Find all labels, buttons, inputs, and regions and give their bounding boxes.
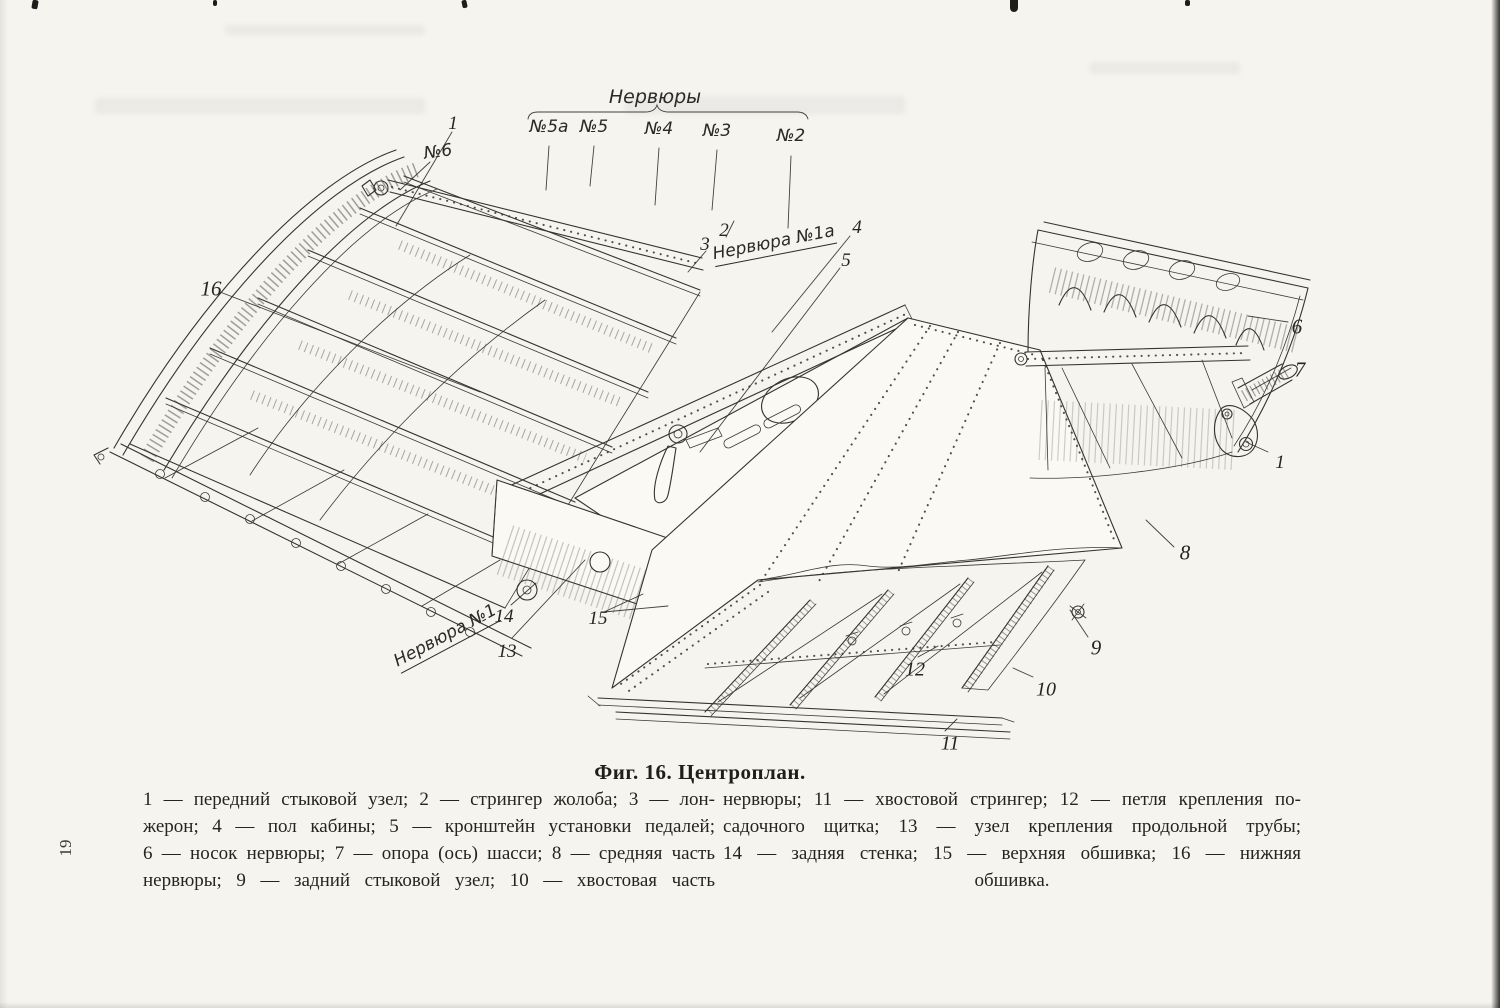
callout-9: 9 — [1091, 636, 1102, 661]
legend-line: 1 — передний стыковой узел; 2 — стрингер… — [143, 786, 715, 813]
callout-4: 4 — [852, 217, 862, 239]
rib-label-6: №6 — [422, 140, 453, 164]
rib-label-3: №3 — [703, 121, 732, 141]
callout-8: 8 — [1180, 541, 1191, 566]
callout-5: 5 — [841, 250, 851, 272]
legend-line: 6 — носок нервюры; 7 — опора (ось) шасси… — [143, 840, 715, 867]
legend-line: 14 — задняя стенка; 15 — верхняя обшивка… — [723, 840, 1301, 867]
legend-line: жерон; 4 — пол кабины; 5 — кронштейн уст… — [143, 813, 715, 840]
right-wing-panel-framework — [1015, 222, 1310, 478]
callout-12: 12 — [905, 659, 925, 682]
callout-16: 16 — [201, 277, 222, 302]
rib-label-4: №4 — [645, 119, 674, 139]
callout-15: 15 — [589, 608, 608, 630]
callout-1-right: 1 — [1275, 452, 1285, 474]
callout-10: 10 — [1036, 679, 1056, 702]
legend-left-column: 1 — передний стыковой узел; 2 — стрингер… — [143, 786, 715, 894]
scanned-page: Нервюры №5а №5 №4 №3 №2 №6 Нервюра №1а Н… — [0, 0, 1500, 1008]
callout-6: 6 — [1292, 315, 1303, 340]
legend-line: обшивка. — [723, 867, 1301, 894]
figure-caption: Фиг. 16. Центроплан. — [450, 760, 950, 785]
legend-line: нервюры; 9 — задний стыковой узел; 10 — … — [143, 867, 715, 894]
page-number: 19 — [56, 826, 76, 870]
legend-line: садочного щитка; 13 — узел крепления про… — [723, 813, 1301, 840]
legend-right-column: нервюры; 11 — хвостовой стрингер; 12 — п… — [723, 786, 1301, 894]
callout-7: 7 — [1295, 358, 1306, 383]
callout-13: 13 — [498, 641, 517, 663]
rib-label-5: №5 — [580, 117, 609, 137]
callout-1-left: 1 — [448, 113, 458, 135]
rib-label-2: №2 — [777, 126, 806, 146]
rib-label-5a: №5а — [530, 117, 569, 137]
ribs-group-label: Нервюры — [609, 86, 701, 108]
legend-line: нервюры; 11 — хвостовой стрингер; 12 — п… — [723, 786, 1301, 813]
callout-14: 14 — [495, 606, 514, 628]
callout-3: 3 — [700, 234, 710, 256]
callout-2: 2 — [719, 220, 729, 242]
callout-11: 11 — [941, 733, 960, 756]
